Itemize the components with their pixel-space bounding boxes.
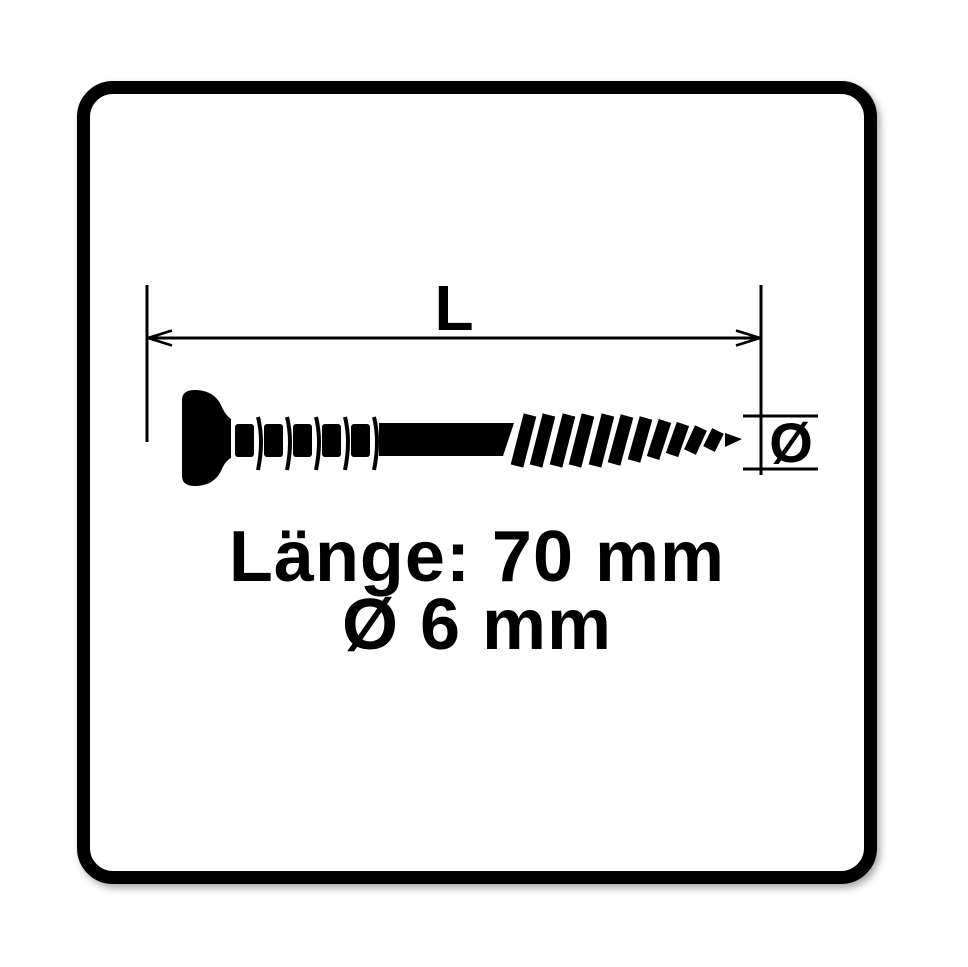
spec-diameter-text: Ø 6 mm (77, 589, 877, 661)
card-frame (77, 81, 877, 884)
spec-length-text: Länge: 70 mm (77, 521, 877, 593)
product-image: L (0, 0, 968, 967)
